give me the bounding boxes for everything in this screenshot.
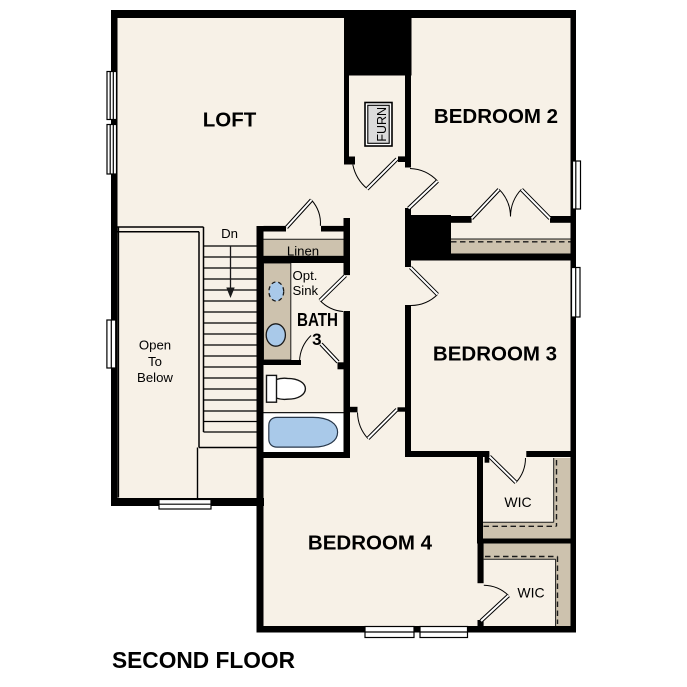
- svg-text:BATH: BATH: [297, 310, 338, 330]
- svg-text:Below: Below: [137, 370, 173, 385]
- svg-text:Dn: Dn: [221, 226, 238, 241]
- svg-text:Open: Open: [139, 338, 171, 353]
- svg-text:Linen: Linen: [287, 243, 319, 258]
- svg-text:To: To: [148, 354, 162, 369]
- svg-text:3: 3: [312, 330, 321, 349]
- svg-text:LOFT: LOFT: [203, 109, 257, 132]
- svg-text:Sink: Sink: [293, 283, 319, 298]
- svg-text:Opt.: Opt.: [293, 268, 318, 283]
- svg-text:BEDROOM 2: BEDROOM 2: [434, 105, 558, 128]
- svg-text:WIC: WIC: [517, 585, 544, 601]
- svg-text:BEDROOM 4: BEDROOM 4: [308, 532, 433, 555]
- svg-text:FURN: FURN: [375, 107, 389, 142]
- svg-text:WIC: WIC: [504, 494, 531, 510]
- svg-text:SECOND FLOOR: SECOND FLOOR: [112, 647, 295, 673]
- svg-text:BEDROOM 3: BEDROOM 3: [433, 343, 557, 366]
